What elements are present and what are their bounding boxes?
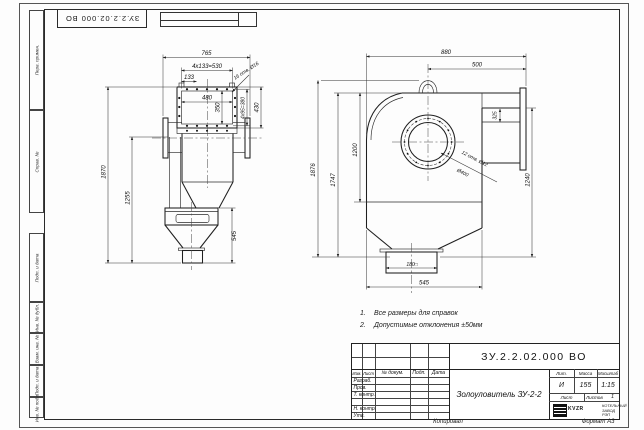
title-block: Изм. Лист № докум. Подп. Дата Разраб. Пр… [351, 343, 620, 420]
dim-front-body-height: 1255 [126, 191, 132, 205]
leader-front-holes: 16 отв. Ø16 [233, 61, 261, 82]
dim-front-first-bolt: 133 [184, 75, 195, 81]
title-doc-number: ЗУ.2.2.02.000 ВО [449, 344, 619, 369]
col-izm: Изм. [352, 369, 362, 377]
leader-side-holes: 12 отв. Ø12 [460, 150, 488, 169]
note-2: 2. Допустимые отклонения ±50мм [352, 322, 582, 329]
side-view: 12 отв. Ø12 Ø400 880 500 1876 1747 1200 … [311, 50, 536, 293]
dim-side-total-width: 880 [441, 50, 452, 56]
mass-value: 155 [574, 377, 597, 393]
dim-side-outlet-height: 1240 [526, 173, 532, 187]
dim-side-outlet-size: 180□ [406, 262, 417, 268]
note-1-number: 1. [352, 310, 374, 317]
outlet-duct-flange [520, 88, 526, 170]
inlet-flange-outer [177, 87, 237, 128]
footer-format: Формат А3 [558, 419, 638, 425]
note-1: 1. Все размеры для справок [352, 310, 582, 317]
dim-front-flange-height: 430 [255, 102, 261, 113]
note-1-text: Все размеры для справок [374, 310, 458, 317]
dim-front-side-bolt-span: 4x95=380 [240, 97, 246, 119]
dim-front-hopper-height: 545 [232, 230, 238, 241]
notes: 1. Все размеры для справок 2. Допустимые… [352, 310, 582, 334]
outlet-spigot [183, 251, 203, 264]
row-prov: Пров. [354, 385, 367, 391]
dim-front-inner-height: 350 [216, 102, 222, 113]
note-2-text: Допустимые отклонения ±50мм [374, 322, 482, 329]
sheets-label: Листов [586, 395, 603, 400]
col-doc: № докум. [375, 369, 410, 377]
dim-side-casing-height: 1747 [331, 173, 337, 187]
lit-value: И [549, 377, 574, 393]
scale-label: Масштаб [597, 369, 619, 377]
scale-value: 1:15 [597, 377, 619, 393]
kvzr-logo-icon [553, 404, 567, 417]
sheets-value: 1 [611, 394, 614, 400]
dim-side-center-height: 1200 [353, 143, 359, 157]
row-tkontr: Т. контр. [354, 392, 376, 398]
kvzr-logo-text: KVZR [568, 401, 602, 418]
lit-label: Лит. [549, 369, 574, 377]
row-nkontr: Н. контр. [354, 406, 377, 412]
leader-side-flange-dia: Ø400 [455, 167, 470, 179]
dim-front-total-height: 1870 [102, 165, 108, 179]
drawing-sheet: ЗУ.2.2.02.000 ВО Перв. примен. Справ. № … [0, 0, 644, 430]
front-view: 765 4x133=530 133 480 350 4x95=380 430 1… [102, 51, 264, 270]
note-2-number: 2. [352, 322, 374, 329]
dim-side-outlet-offset: 500 [472, 63, 483, 69]
dim-front-total-width: 765 [201, 51, 212, 57]
row-razrab: Разраб. [354, 378, 372, 384]
ash-box-hatch [176, 215, 209, 223]
row-utv: Утв. [354, 413, 365, 419]
kvzr-logo-line2: ЗАВОД РЭП [602, 409, 619, 418]
sheet-label: Лист [549, 393, 584, 401]
dim-front-inner-width: 480 [202, 96, 213, 102]
product-name: Золоуловитель ЗУ-2-2 [449, 369, 549, 419]
kvzr-logo-subtitle: КОТЕЛЬНЫЙ ЗАВОД РЭП [602, 404, 619, 418]
dim-front-bolt-span: 4x133=530 [192, 64, 223, 70]
col-list: Лист [362, 369, 375, 377]
dim-side-base-width: 545 [419, 281, 430, 287]
volute-casing [367, 93, 403, 228]
footer-copied: Копировал [400, 419, 496, 425]
col-podp: Подп. [410, 369, 428, 377]
col-data: Дата [428, 369, 449, 377]
dim-side-total-height: 1876 [311, 163, 317, 177]
mass-label: Масса [574, 369, 597, 377]
dim-side-duct: 325 [493, 111, 499, 120]
